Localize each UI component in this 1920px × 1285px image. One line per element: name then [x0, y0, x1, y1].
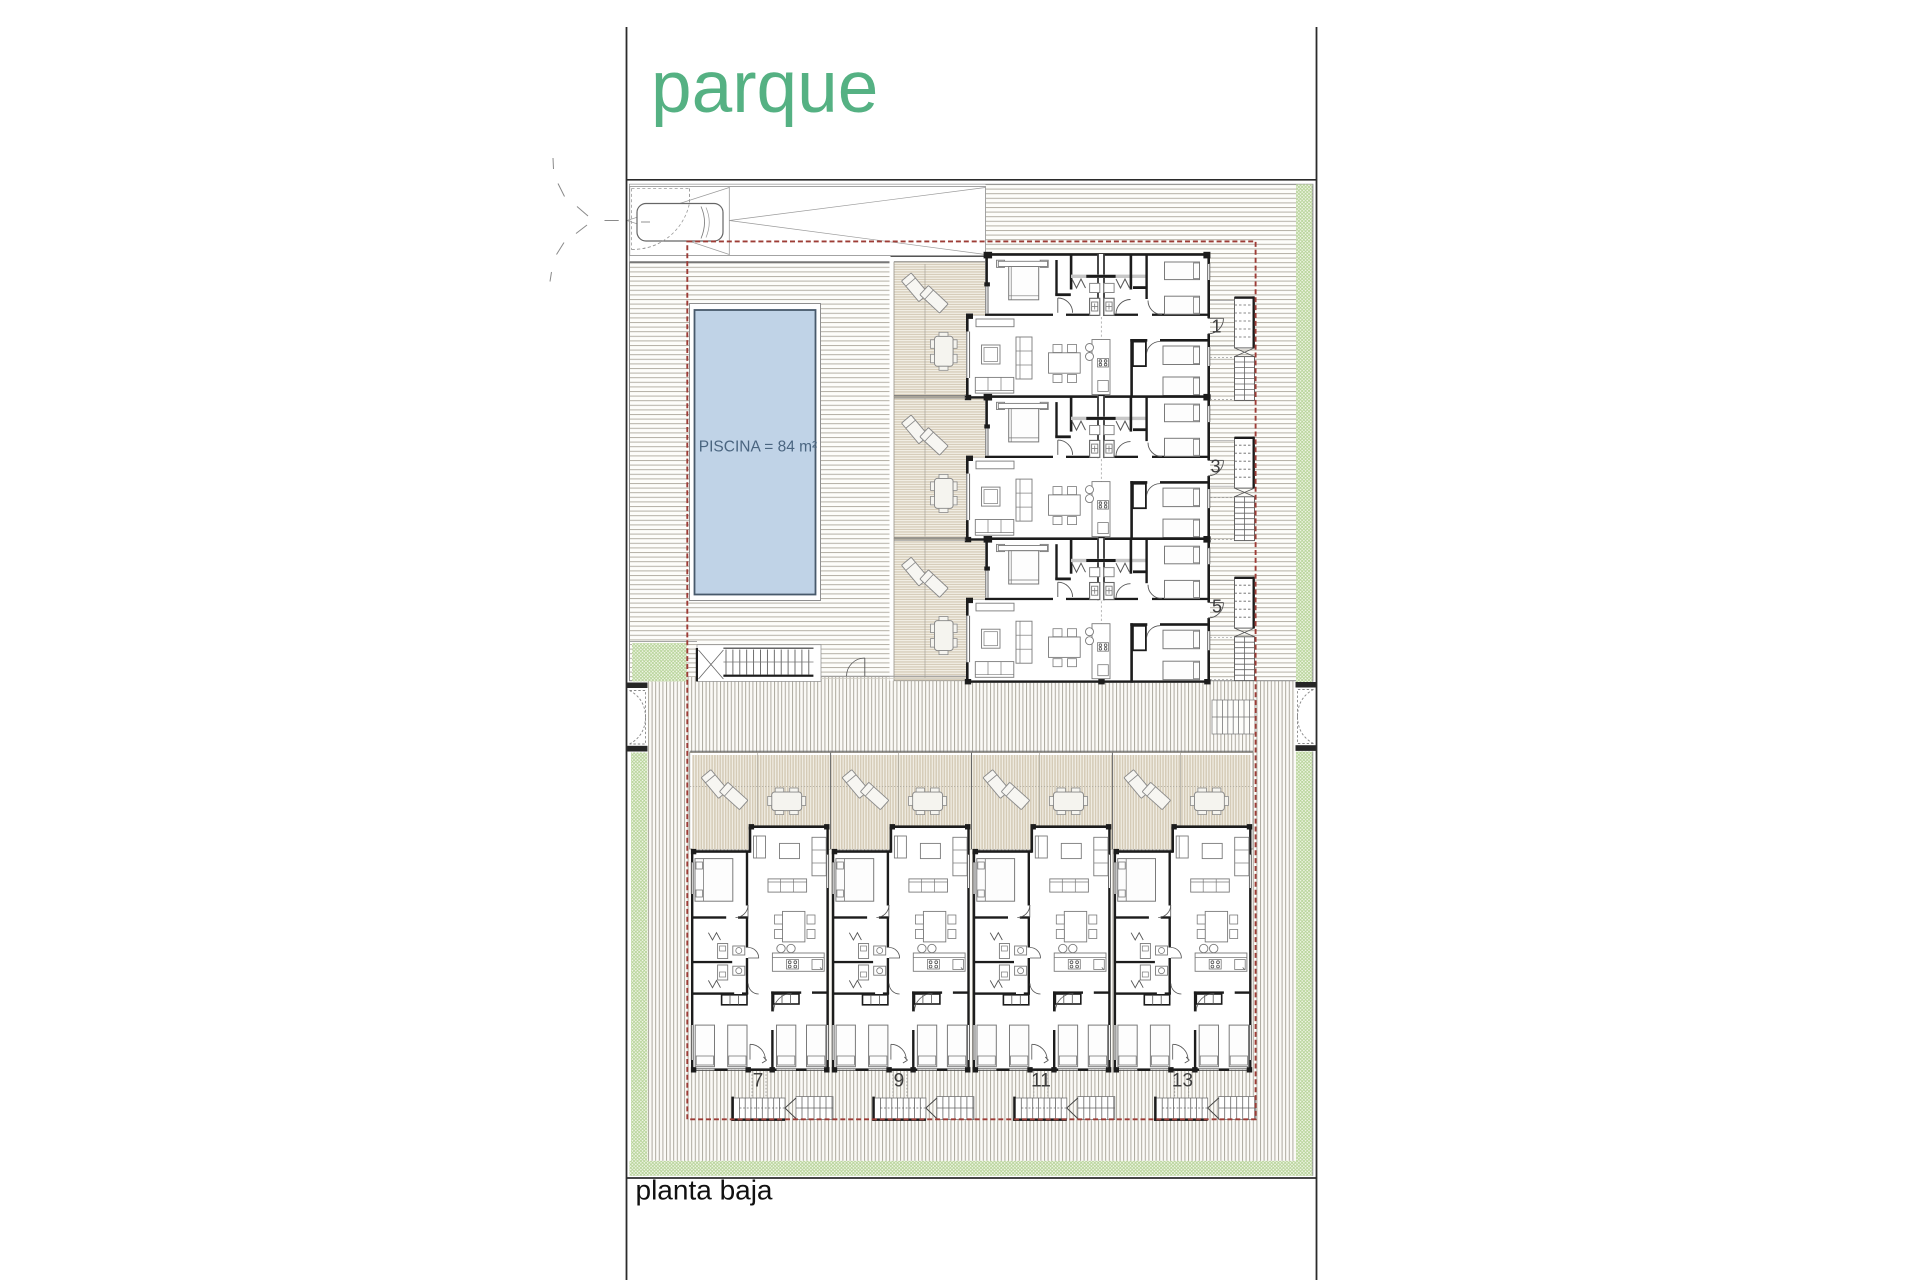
svg-text:parque: parque	[651, 47, 878, 128]
svg-text:1: 1	[1212, 317, 1222, 337]
svg-text:3: 3	[1211, 457, 1221, 477]
svg-text:13: 13	[1172, 1070, 1193, 1091]
svg-text:5: 5	[1212, 597, 1222, 617]
svg-text:PISCINA = 84 m²: PISCINA = 84 m²	[699, 439, 817, 456]
svg-text:11: 11	[1031, 1070, 1051, 1091]
svg-text:9: 9	[894, 1070, 905, 1091]
svg-text:7: 7	[753, 1070, 764, 1091]
svg-text:planta baja: planta baja	[636, 1174, 773, 1205]
